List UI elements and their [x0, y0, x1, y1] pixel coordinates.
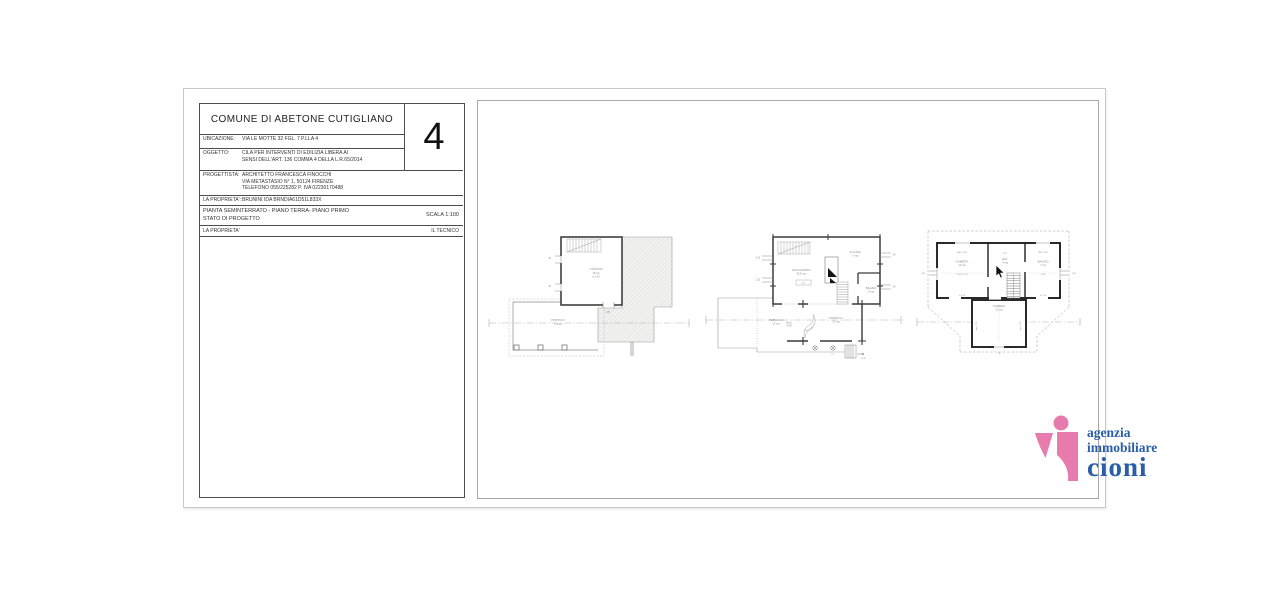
camera2-dim-right: sup. 2.70 [1020, 321, 1022, 331]
porch-dashed-outline [509, 299, 604, 356]
drain-symbols [813, 346, 835, 350]
bagno-area: 5 mq [868, 290, 874, 294]
portico-label: PORTICO [829, 316, 843, 320]
firma-tecnico-label: IL TECNICO [431, 228, 459, 234]
progettista-line3: TELEFONO 055/225282 P. IVA 02230170488 [242, 185, 461, 192]
camera2-dim-left: sup. 2.70 [976, 321, 978, 331]
win-right-1: 90 [893, 255, 896, 257]
camera2-label: CAMERA [993, 304, 1006, 308]
bagno-area: 7 mq [1040, 263, 1046, 267]
agency-logo-text: agenzia immobiliare cioni [1087, 426, 1197, 480]
comune-title: COMUNE DI ABETONE CUTIGLIANO [211, 114, 393, 125]
agency-logo-icon [1032, 414, 1082, 498]
svg-text:rad.: rad. [802, 282, 806, 285]
drain-label: p.c. [831, 354, 835, 356]
bagno-label: BAGNO [866, 286, 878, 290]
floor-plan-seminterrato: CANTINA 15 mq h 2.20 PORTICO h 2.20 235 … [485, 226, 695, 371]
ubicazione-label: UBICAZIONE: [203, 136, 242, 143]
title-block: COMUNE DI ABETONE CUTIGLIANO 4 UBICAZION… [199, 103, 465, 498]
dis-label: DIS. [1002, 257, 1008, 261]
bagno-dim-top: 360 x 315 [1038, 252, 1048, 254]
logo-wedge [1035, 433, 1053, 458]
soggiorno-label: SOGGIORNO [792, 268, 812, 272]
tree-symbol [804, 314, 815, 338]
porch-walls [513, 302, 598, 350]
win-left-2: 120 [756, 280, 761, 282]
sheet-number-cell: 4 [404, 104, 463, 171]
row-progettista: PROGETTISTA: ARCHITETTO FRANCESCA FINOCC… [200, 171, 463, 196]
porch-label: PORTICO [551, 318, 565, 322]
pianta-line1: PIANTA SEMINTERRATO - PIANO TERRA- PIANO… [203, 208, 349, 216]
mouse-cursor-icon [995, 264, 1007, 280]
row-oggetto: OGGETTO: CILA PER INTERVENTI DI EDILIZIA… [200, 149, 404, 171]
stairs [567, 239, 601, 252]
firma-proprieta-label: LA PROPRIETA' [203, 228, 240, 234]
porch-height: h 2.20 [554, 322, 562, 326]
camera-label: CAMERA [956, 260, 969, 264]
pergola-area: 13 mq [772, 322, 780, 326]
window-dim-1: 90 [548, 258, 551, 260]
room-label: CANTINA [589, 267, 602, 271]
stairs-top [778, 242, 810, 254]
win-right-2: 90 [893, 287, 896, 289]
camera2-area: 11 mq [995, 308, 1003, 312]
logo-head [1054, 416, 1069, 431]
bagno-dim-bottom: h 2.70 [1040, 295, 1047, 297]
porch-columns [514, 345, 567, 350]
camera-area: 14 mq [958, 263, 966, 267]
bagno-label: BAGNO [1038, 260, 1050, 264]
room-area: 15 mq [592, 271, 600, 275]
stairs [1007, 273, 1020, 298]
window-openings [555, 256, 561, 291]
title-block-header: COMUNE DI ABETONE CUTIGLIANO [200, 104, 404, 135]
room-height: h 2.20 [592, 275, 600, 279]
pergola-label: PERGOLA [769, 318, 784, 322]
proprieta-value: BRUNINI IDA BRNDIA61D51L833X [242, 197, 461, 204]
exterior-steps [845, 345, 864, 358]
cucina-area: 7 mq [852, 254, 858, 258]
logo-line1: agenzia [1087, 426, 1197, 441]
proprieta-label: LA PROPRIETA': [203, 197, 242, 204]
bottom-dim: 90 [998, 353, 1001, 355]
floor-plan-piano-primo: 480 x 315 CAMERA 14 mq 5.16 x 2.78 h 2.7… [915, 226, 1085, 371]
downspout [631, 342, 633, 356]
row-ubicazione: UBICAZIONE: VIA LE MOTTE 32 FGL. 7 P.LLA… [200, 135, 404, 149]
row-pianta-scala: PIANTA SEMINTERRATO - PIANO TERRA- PIANO… [200, 206, 463, 226]
soggiorno-area: 28.5 mq [796, 272, 806, 276]
sheet-number: 4 [423, 116, 444, 159]
logo-bar [1057, 432, 1078, 481]
win-left-1: 120 [756, 258, 761, 260]
camera-dim-bottom: h 2.70 [959, 295, 966, 297]
screenshot-root: { "titleblock": { "header": "COMUNE DI A… [0, 0, 1280, 597]
camera-dim-top: 480 x 315 [957, 252, 967, 254]
row-proprieta: LA PROPRIETA': BRUNINI IDA BRNDIA61D51L8… [200, 196, 463, 206]
ubicazione-value: VIA LE MOTTE 32 FGL. 7 P.LLA 4 [242, 136, 402, 143]
window-dim-2: 90 [548, 286, 551, 288]
logo-line3: cioni [1087, 455, 1197, 480]
scala-label: SCALA 1:100 [426, 212, 459, 218]
pillar-p-box [787, 322, 791, 326]
cucina-label: CUCINA [849, 250, 861, 254]
progettista-label: PROGETTISTA: [203, 172, 242, 192]
tick-left-label: 135 [921, 273, 925, 275]
pergola-outline [718, 298, 848, 352]
porch-walls [787, 304, 862, 341]
portico-area: 21 mq [832, 320, 840, 324]
tick-right-label: 135 [1072, 273, 1076, 275]
camera-dim-mid: 5.16 x 2.78 [957, 274, 969, 276]
floor-plan-piano-terra: rad. SOGGIORNO 28.5 mq CUCINA 7 mq BAGNO… [700, 226, 915, 371]
row-firme: LA PROPRIETA' IL TECNICO [200, 226, 463, 237]
quota-label: +0.45 [860, 358, 866, 360]
oggetto-label: OGGETTO: [203, 150, 242, 163]
pianta-line2: STATO DI PROGETTO [203, 216, 349, 224]
oggetto-line2: SENSI DELL'ART. 136 COMMA 4 DELLA L.R.65… [242, 157, 402, 164]
